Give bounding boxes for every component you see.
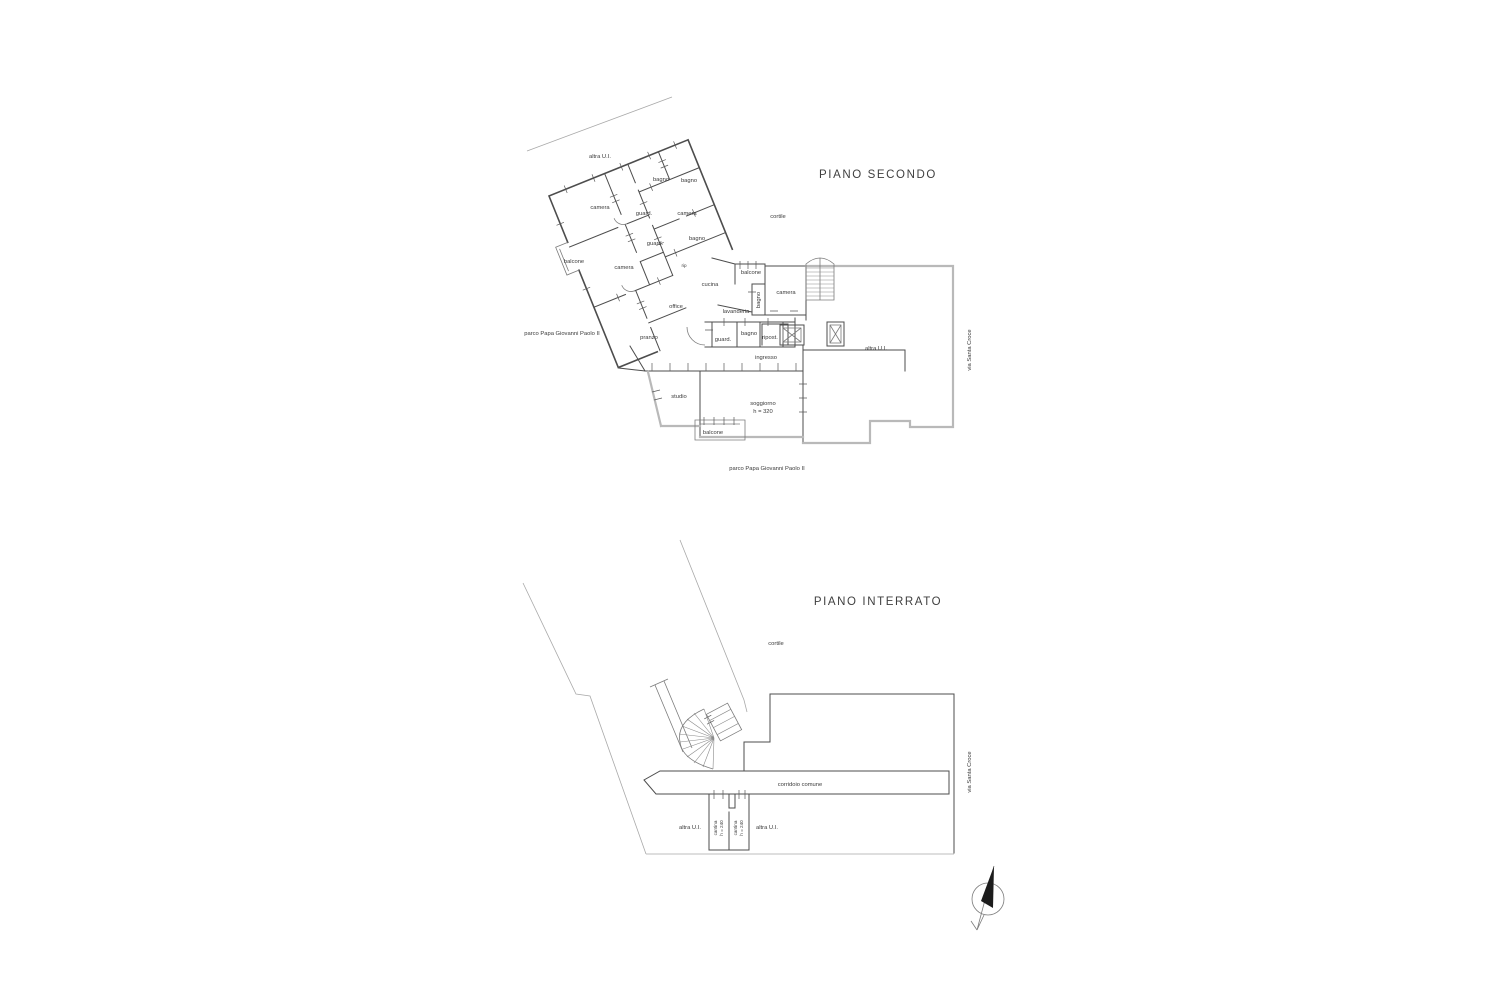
soggiorno-outline bbox=[648, 372, 803, 437]
room-label-bagno-3: bagno bbox=[689, 236, 705, 242]
room-label-cantina-1-height: h = 240 bbox=[719, 820, 724, 836]
room-label-cucina: cucina bbox=[702, 282, 720, 288]
room-label-rip: rip bbox=[681, 263, 687, 268]
room-label-soggiorno-height: h = 320 bbox=[753, 409, 773, 415]
room-label-soggiorno: soggiorno bbox=[750, 401, 775, 407]
room-label-camera-1: camera bbox=[590, 205, 610, 211]
plan-title-piano-secondo: PIANO SECONDO bbox=[819, 169, 937, 181]
room-label-ripost: ripost. bbox=[762, 335, 778, 341]
room-label-camera-3: camera bbox=[614, 265, 634, 271]
room-label-bagno-2: bagno bbox=[681, 178, 697, 184]
piano-interrato-labels: PIANO INTERRATOcortilecorridoio comuneal… bbox=[679, 596, 973, 836]
room-label-guard-1: guard. bbox=[636, 211, 653, 217]
staircase-icon bbox=[806, 258, 834, 300]
altra-ui-outline bbox=[803, 266, 953, 443]
site-label-parco-bottom: parco Papa Giovanni Paolo II bbox=[729, 466, 805, 472]
boundary-line-left bbox=[523, 583, 646, 854]
room-label-cantina-2-height: h = 240 bbox=[739, 820, 744, 836]
room-label-cortile-basement: cortile bbox=[768, 641, 783, 647]
room-label-balcone-3: balcone bbox=[703, 430, 723, 436]
room-label-ingresso: ingresso bbox=[755, 355, 777, 361]
street-label-via-santa-croce-top: via Santa Croce bbox=[967, 329, 973, 370]
room-label-lavanderia: lavanderia bbox=[723, 309, 751, 315]
room-label-balcone-2: balcone bbox=[741, 270, 761, 276]
floorplan-canvas: PIANO SECONDOaltra U.I.bagnobagnocamerag… bbox=[0, 0, 1500, 1000]
room-label-cortile: cortile bbox=[770, 214, 785, 220]
room-label-altra-ui-right: altra U.I. bbox=[865, 346, 887, 352]
boundary-line-right bbox=[680, 540, 747, 712]
room-label-altra-ui-top: altra U.I. bbox=[589, 154, 611, 160]
room-label-bagno-5: bagno bbox=[741, 331, 757, 337]
north-arrow-icon bbox=[971, 866, 1004, 930]
boundary-line bbox=[527, 97, 672, 151]
street-label-via-santa-croce-bottom: via Santa Croce bbox=[967, 751, 973, 792]
elevator-icon bbox=[780, 325, 804, 345]
room-label-guard-2: guard. bbox=[647, 241, 664, 247]
plan-title-piano-interrato: PIANO INTERRATO bbox=[814, 596, 942, 608]
staircase-fan-icon bbox=[679, 709, 714, 769]
room-label-studio: studio bbox=[671, 394, 686, 400]
room-label-bagno-4: bagno bbox=[756, 292, 762, 308]
room-label-balcone-1: balcone bbox=[564, 259, 584, 265]
room-label-bagno-1: bagno bbox=[653, 177, 669, 183]
room-label-altra-ui-basement-right: altra U.I. bbox=[756, 825, 778, 831]
room-label-altra-ui-basement-left: altra U.I. bbox=[679, 825, 701, 831]
elevator-icon bbox=[827, 322, 844, 346]
room-label-camera-2: camera bbox=[677, 211, 697, 217]
site-label-parco-left: parco Papa Giovanni Paolo II bbox=[524, 331, 600, 337]
room-label-pranzo: pranzo bbox=[640, 335, 658, 341]
piano-interrato-walls bbox=[523, 540, 954, 854]
room-label-cantina-1: cantina bbox=[713, 820, 718, 835]
room-label-cantina-2: cantina bbox=[733, 820, 738, 835]
room-label-office: office bbox=[669, 304, 683, 310]
wall bbox=[619, 368, 645, 371]
room-label-guard-3: guard. bbox=[715, 337, 732, 343]
room-label-camera-4: camera bbox=[776, 290, 796, 296]
floorplan-drawing: PIANO SECONDOaltra U.I.bagnobagnocamerag… bbox=[0, 0, 1500, 1000]
room-label-corridoio-comune: corridoio comune bbox=[778, 782, 822, 788]
piano-secondo-labels: PIANO SECONDOaltra U.I.bagnobagnocamerag… bbox=[524, 154, 973, 472]
